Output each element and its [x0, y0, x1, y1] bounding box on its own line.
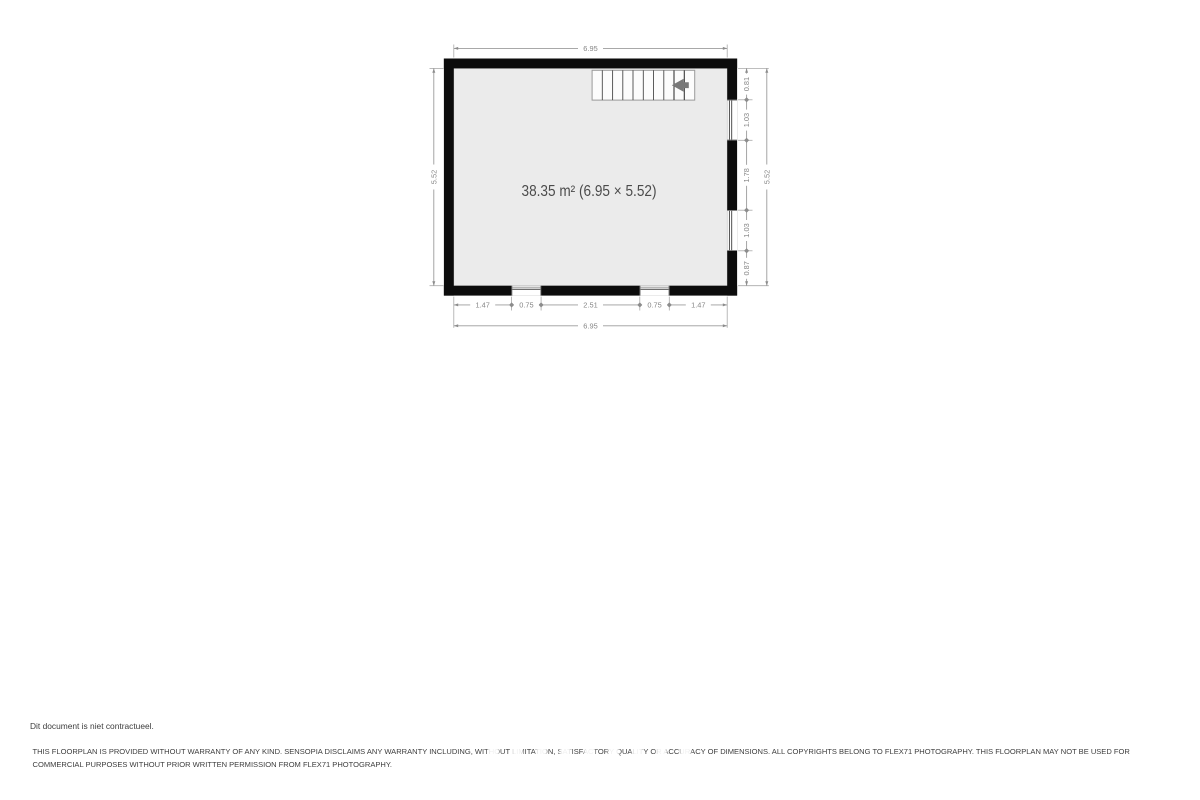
svg-text:1.47: 1.47 — [691, 301, 705, 310]
svg-text:6.95: 6.95 — [583, 321, 597, 330]
svg-text:0.87: 0.87 — [742, 261, 751, 275]
svg-text:1.78: 1.78 — [742, 168, 751, 182]
svg-text:0.75: 0.75 — [647, 301, 661, 310]
svg-text:2.51: 2.51 — [583, 301, 597, 310]
svg-text:5.52: 5.52 — [762, 170, 771, 184]
svg-text:1.03: 1.03 — [742, 113, 751, 127]
svg-text:1.03: 1.03 — [742, 223, 751, 237]
svg-text:0.75: 0.75 — [519, 301, 533, 310]
svg-text:38.35 m² (6.95 × 5.52): 38.35 m² (6.95 × 5.52) — [522, 183, 657, 200]
svg-text:5.52: 5.52 — [429, 170, 438, 184]
svg-text:0.81: 0.81 — [742, 77, 751, 91]
svg-text:1.47: 1.47 — [476, 301, 490, 310]
svg-text:6.95: 6.95 — [583, 44, 597, 53]
